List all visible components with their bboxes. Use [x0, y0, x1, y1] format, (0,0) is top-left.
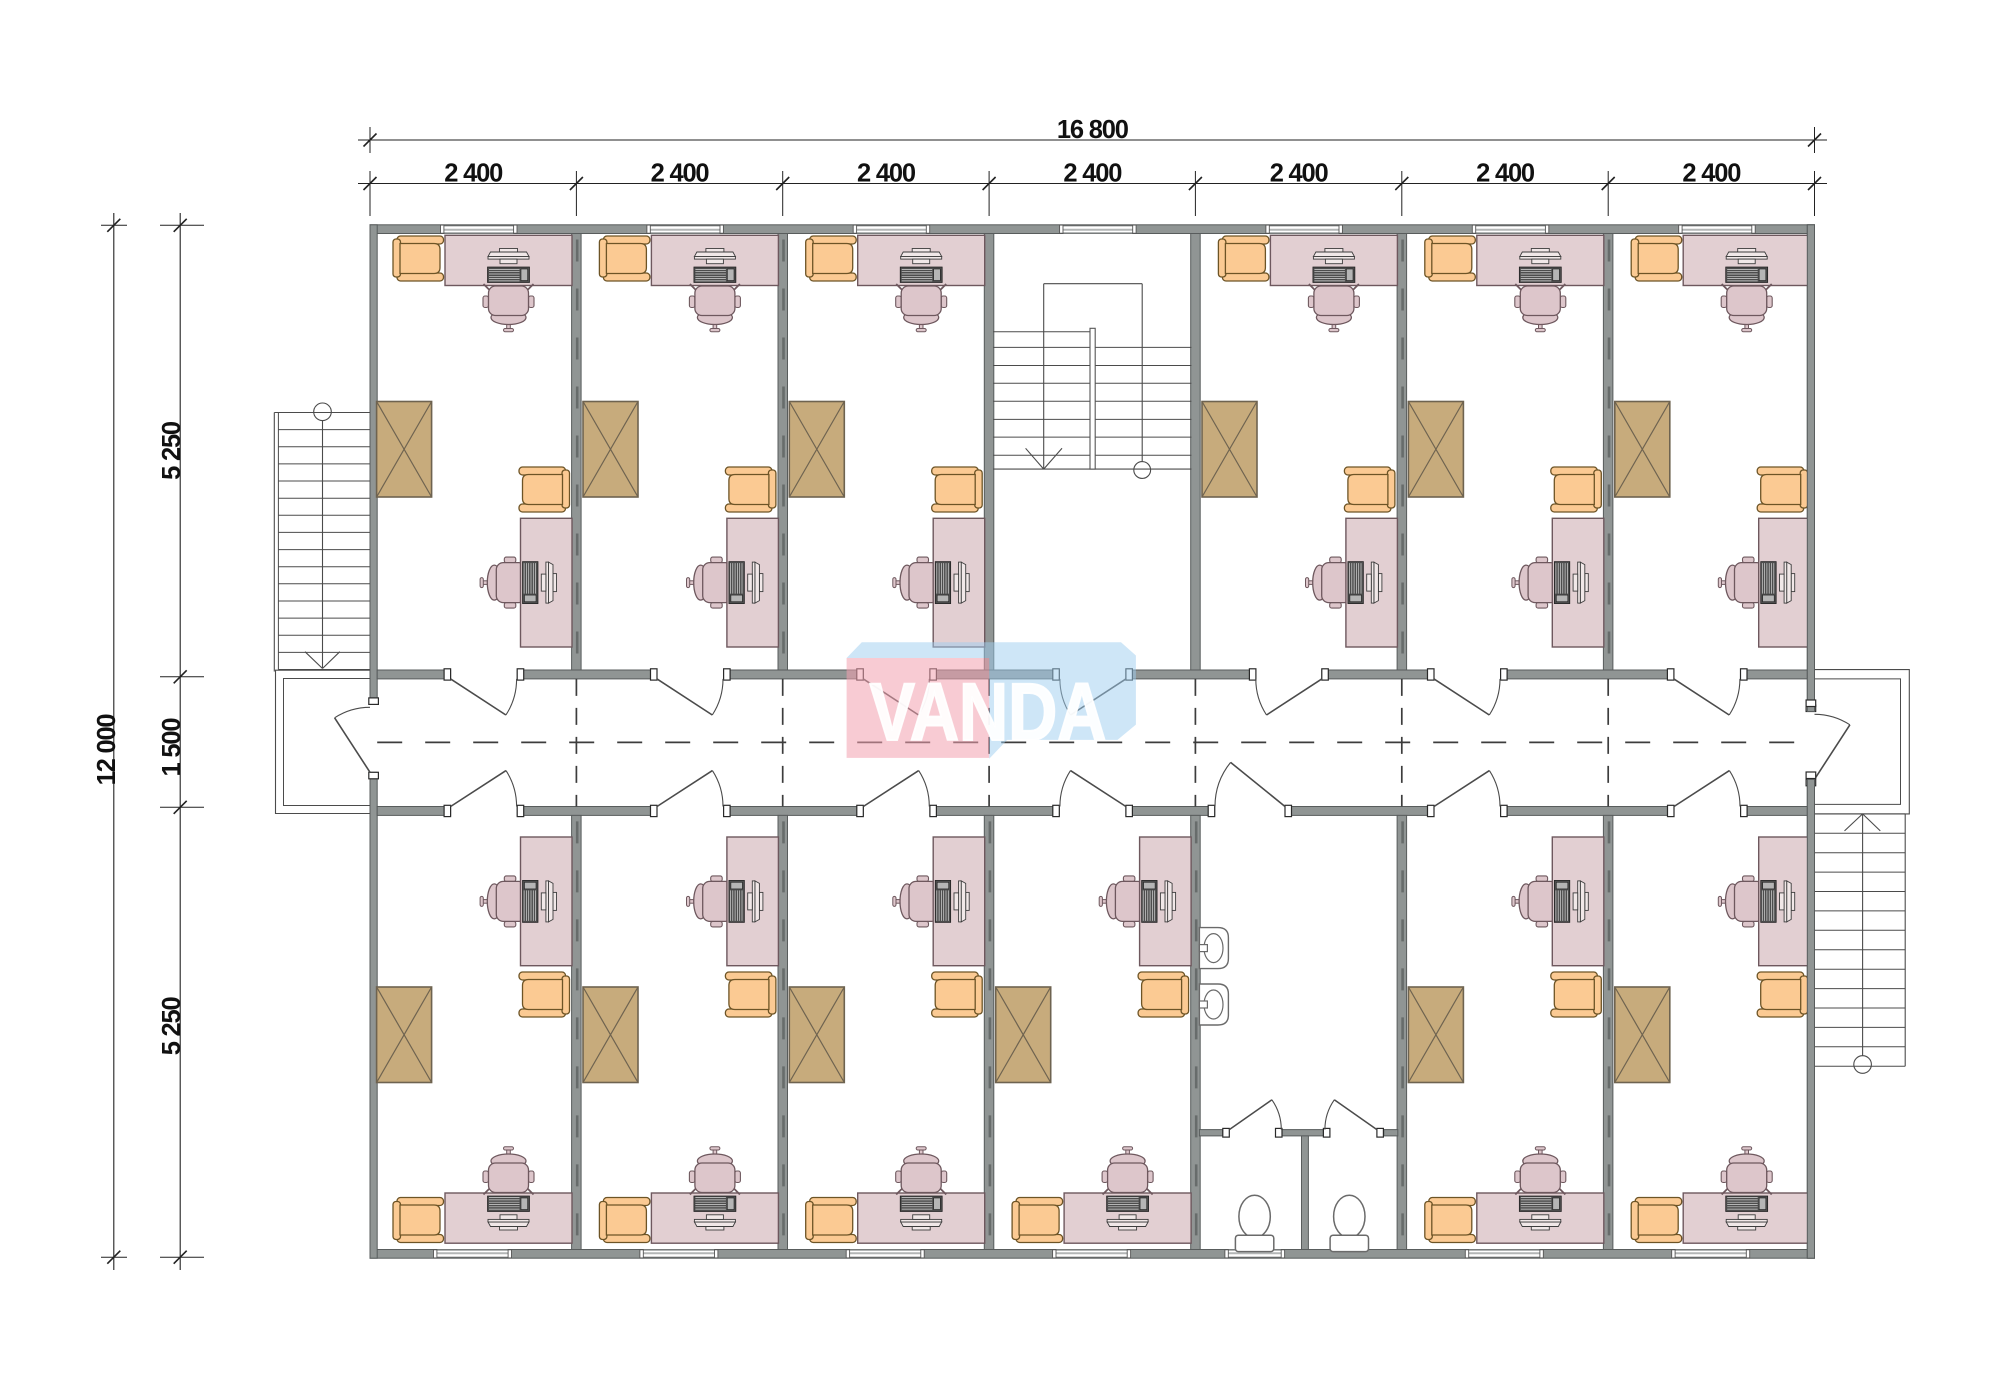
svg-text:16 800: 16 800: [1057, 116, 1129, 144]
svg-text:2 400: 2 400: [444, 160, 503, 188]
svg-text:2 400: 2 400: [1270, 160, 1329, 188]
svg-text:2 400: 2 400: [1682, 160, 1741, 188]
svg-text:5 250: 5 250: [158, 421, 186, 480]
svg-text:VANDA: VANDA: [870, 666, 1107, 757]
svg-text:12 000: 12 000: [93, 714, 121, 786]
svg-text:2 400: 2 400: [1063, 160, 1122, 188]
svg-text:5 250: 5 250: [158, 996, 186, 1055]
svg-text:2 400: 2 400: [1476, 160, 1535, 188]
svg-text:1 500: 1 500: [158, 718, 186, 777]
svg-text:2 400: 2 400: [857, 160, 916, 188]
svg-text:2 400: 2 400: [651, 160, 710, 188]
